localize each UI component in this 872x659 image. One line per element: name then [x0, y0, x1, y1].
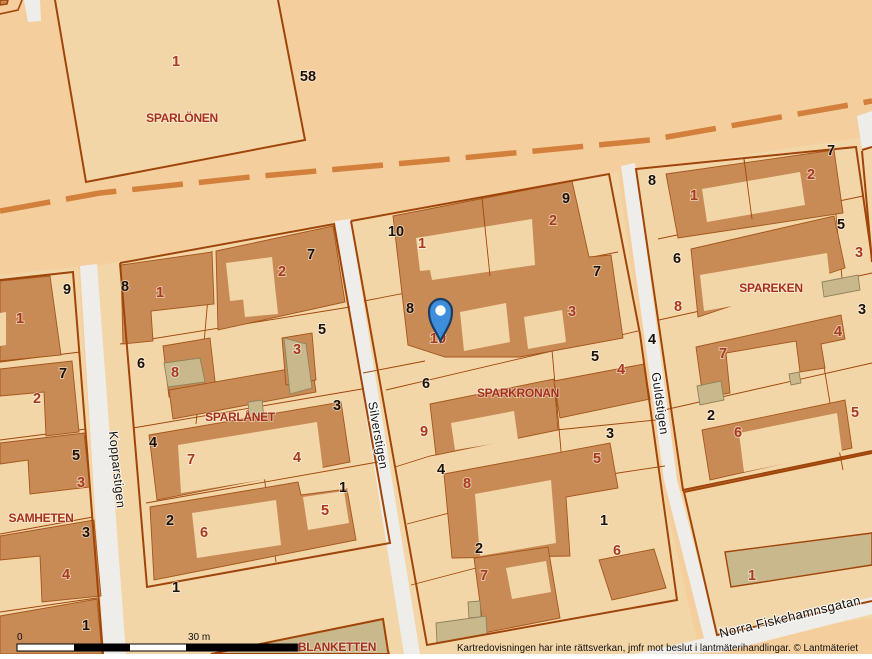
svg-text:2: 2	[33, 391, 41, 407]
svg-text:7: 7	[719, 346, 727, 362]
svg-text:SPARKRONAN: SPARKRONAN	[477, 386, 559, 400]
svg-text:8: 8	[463, 476, 471, 492]
svg-text:6: 6	[613, 543, 621, 559]
svg-text:5: 5	[591, 349, 599, 365]
svg-text:6: 6	[734, 425, 742, 441]
svg-text:BLANKETTEN: BLANKETTEN	[298, 640, 376, 654]
svg-text:1: 1	[156, 285, 164, 301]
svg-text:3: 3	[606, 426, 614, 442]
svg-text:7: 7	[187, 452, 195, 468]
svg-text:1: 1	[690, 188, 698, 204]
svg-text:1: 1	[172, 580, 180, 596]
svg-text:Kartredovisningen har inte rät: Kartredovisningen har inte rättsverkan, …	[457, 643, 858, 654]
svg-text:1: 1	[748, 568, 756, 584]
svg-text:4: 4	[834, 324, 842, 340]
svg-text:4: 4	[62, 567, 70, 583]
svg-text:10: 10	[388, 224, 404, 240]
svg-text:7: 7	[59, 366, 67, 382]
svg-text:5: 5	[593, 451, 601, 467]
svg-text:SPAREKEN: SPAREKEN	[739, 281, 802, 295]
svg-text:2: 2	[475, 541, 483, 557]
svg-text:1: 1	[172, 54, 180, 70]
svg-text:5: 5	[837, 217, 845, 233]
svg-text:9: 9	[562, 191, 570, 207]
svg-text:2: 2	[278, 264, 286, 280]
svg-text:4: 4	[617, 362, 625, 378]
svg-text:2: 2	[549, 213, 557, 229]
svg-text:5: 5	[321, 503, 329, 519]
svg-text:3: 3	[77, 475, 85, 491]
svg-text:SAMHETEN: SAMHETEN	[9, 511, 74, 525]
svg-text:4: 4	[648, 332, 656, 348]
svg-text:7: 7	[827, 143, 835, 159]
svg-text:6: 6	[200, 525, 208, 541]
svg-text:SPARLÅNET: SPARLÅNET	[205, 409, 276, 424]
svg-text:9: 9	[420, 424, 428, 440]
svg-text:5: 5	[318, 322, 326, 338]
svg-text:7: 7	[307, 247, 315, 263]
svg-text:3: 3	[82, 525, 90, 541]
svg-text:1: 1	[418, 236, 426, 252]
svg-text:6: 6	[673, 251, 681, 267]
svg-text:8: 8	[406, 301, 414, 317]
svg-text:4: 4	[293, 450, 301, 466]
svg-text:2: 2	[166, 513, 174, 529]
svg-text:3: 3	[293, 342, 301, 358]
svg-text:30 m: 30 m	[188, 632, 210, 643]
svg-text:8: 8	[648, 173, 656, 189]
svg-text:3: 3	[568, 304, 576, 320]
svg-text:58: 58	[300, 69, 316, 85]
svg-text:4: 4	[149, 435, 157, 451]
svg-text:7: 7	[480, 568, 488, 584]
svg-text:1: 1	[82, 618, 90, 634]
svg-text:3: 3	[855, 245, 863, 261]
svg-text:1: 1	[339, 480, 347, 496]
svg-text:8: 8	[674, 299, 682, 315]
svg-text:3: 3	[333, 398, 341, 414]
svg-text:5: 5	[851, 405, 859, 421]
svg-text:4: 4	[437, 462, 445, 478]
svg-text:9: 9	[63, 282, 71, 298]
svg-text:6: 6	[422, 376, 430, 392]
svg-text:8: 8	[171, 365, 179, 381]
svg-text:8: 8	[121, 279, 129, 295]
svg-text:SPARLÖNEN: SPARLÖNEN	[146, 110, 218, 125]
svg-text:3: 3	[858, 302, 866, 318]
svg-text:1: 1	[16, 311, 24, 327]
svg-text:7: 7	[593, 264, 601, 280]
svg-text:6: 6	[137, 356, 145, 372]
svg-text:0: 0	[17, 632, 23, 643]
svg-text:5: 5	[72, 448, 80, 464]
svg-text:2: 2	[807, 167, 815, 183]
svg-text:2: 2	[707, 408, 715, 424]
svg-text:1: 1	[600, 513, 608, 529]
